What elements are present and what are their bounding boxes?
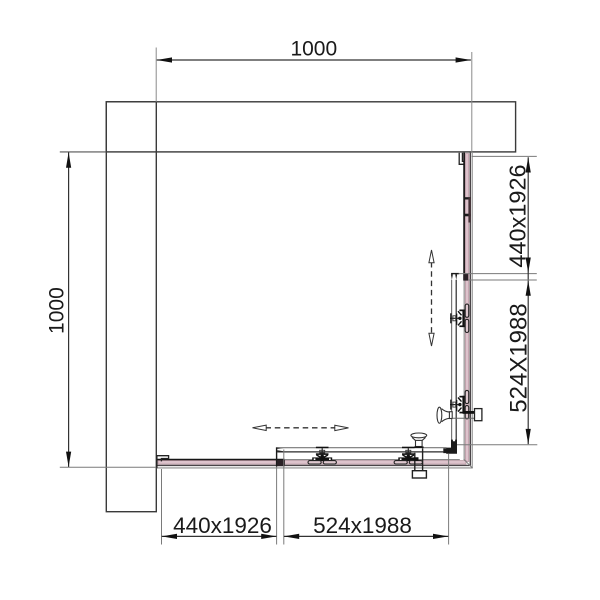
svg-text:440x1926: 440x1926 [173,513,272,538]
svg-text:440x1926: 440x1926 [505,164,531,267]
svg-text:524X1988: 524X1988 [506,303,533,412]
svg-text:524x1988: 524x1988 [313,513,412,538]
svg-text:1000: 1000 [46,287,69,334]
svg-text:1000: 1000 [290,38,337,61]
